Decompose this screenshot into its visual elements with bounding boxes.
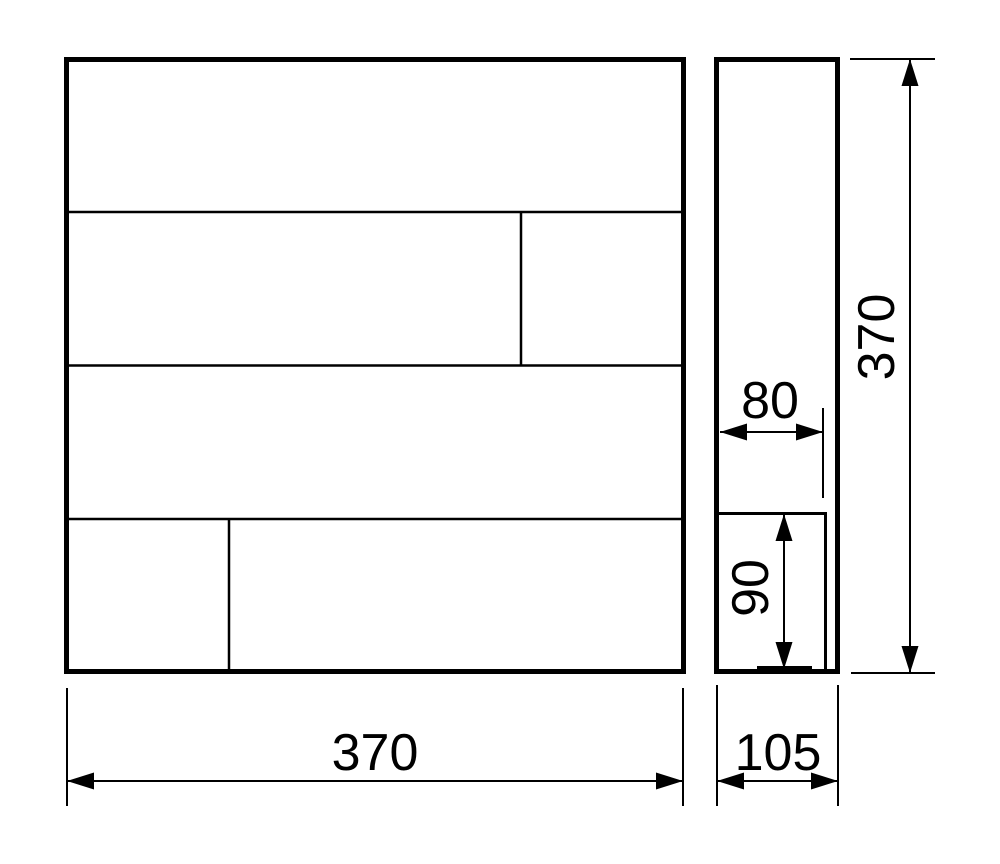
side-depth-label: 105 xyxy=(735,724,822,782)
drawing-svg: 370 105 370 80 xyxy=(0,0,1000,864)
front-width-label: 370 xyxy=(332,724,419,782)
dimension-side-depth: 105 xyxy=(717,685,838,806)
front-height-arrowhead-bottom xyxy=(902,646,919,673)
front-width-arrowhead-right xyxy=(656,773,683,790)
front-view xyxy=(66,60,684,672)
technical-drawing-canvas: 370 105 370 80 xyxy=(0,0,1000,864)
dimension-front-width: 370 xyxy=(67,688,683,806)
front-width-arrowhead-left xyxy=(67,773,94,790)
front-height-label: 370 xyxy=(848,294,906,381)
dimension-front-height: 370 xyxy=(848,59,935,673)
slot-depth-label: 80 xyxy=(741,372,799,430)
front-height-arrowhead-top xyxy=(902,59,919,86)
slot-height-label: 90 xyxy=(722,559,780,617)
